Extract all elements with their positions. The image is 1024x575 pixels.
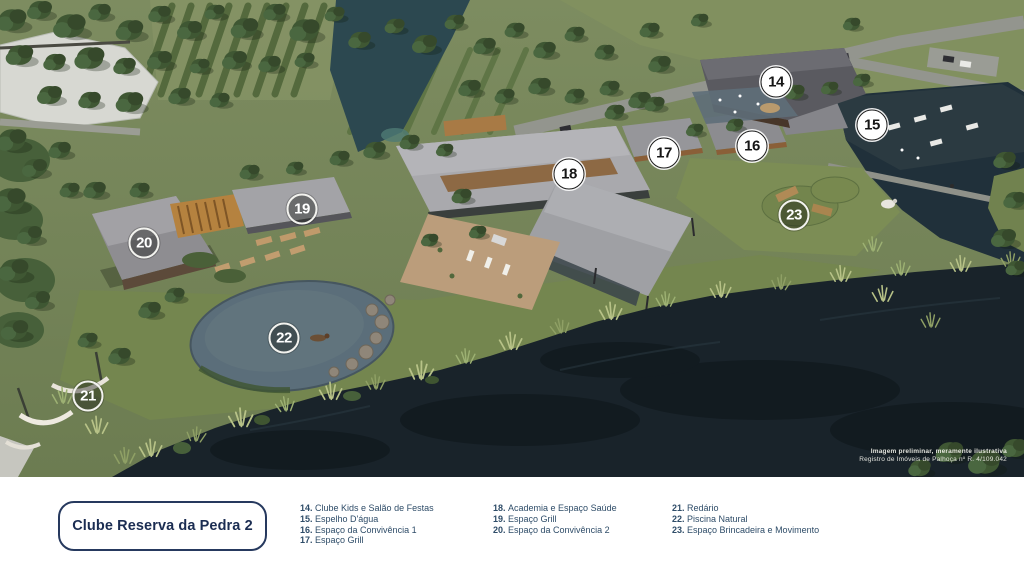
map-marker-19: 19 xyxy=(287,194,318,225)
legend-item-19: 19. Espaço Grill xyxy=(493,514,617,525)
legend-column-1: 14. Clube Kids e Salão de Festas15. Espe… xyxy=(300,503,434,546)
disclaimer-line-2: Registro de Imóveis de Palhoça nº R. 4/1… xyxy=(859,456,1007,464)
map-marker-16: 16 xyxy=(737,131,768,162)
masterplan-page: 14151617181920212223 Imagem preliminar, … xyxy=(0,0,1024,575)
legend-band: Clube Reserva da Pedra 2 14. Clube Kids … xyxy=(0,477,1024,575)
map-marker-20: 20 xyxy=(129,228,160,259)
disclaimer: Imagem preliminar, meramente ilustrativa… xyxy=(859,448,1007,463)
map-marker-18: 18 xyxy=(554,159,585,190)
legend-item-14: 14. Clube Kids e Salão de Festas xyxy=(300,503,434,514)
legend-item-15: 15. Espelho D'água xyxy=(300,514,434,525)
legend-item-20: 20. Espaço da Convivência 2 xyxy=(493,525,617,536)
legend-item-21: 21. Redário xyxy=(672,503,819,514)
legend-item-23: 23. Espaço Brincadeira e Movimento xyxy=(672,525,819,536)
legend-column-2: 18. Academia e Espaço Saúde19. Espaço Gr… xyxy=(493,503,617,535)
legend-item-22: 22. Piscina Natural xyxy=(672,514,819,525)
project-title: Clube Reserva da Pedra 2 xyxy=(72,518,253,534)
legend-item-16: 16. Espaço da Convivência 1 xyxy=(300,525,434,536)
map-marker-14: 14 xyxy=(761,67,792,98)
legend-item-18: 18. Academia e Espaço Saúde xyxy=(493,503,617,514)
map-marker-22: 22 xyxy=(269,323,300,354)
legend-item-17: 17. Espaço Grill xyxy=(300,535,434,546)
marker-layer: 14151617181920212223 xyxy=(0,0,1024,477)
project-title-box: Clube Reserva da Pedra 2 xyxy=(58,501,267,551)
map-marker-21: 21 xyxy=(73,381,104,412)
legend-column-3: 21. Redário22. Piscina Natural23. Espaço… xyxy=(672,503,819,535)
map-marker-15: 15 xyxy=(857,110,888,141)
map-marker-23: 23 xyxy=(779,200,810,231)
disclaimer-line-1: Imagem preliminar, meramente ilustrativa xyxy=(859,448,1007,456)
map-marker-17: 17 xyxy=(649,138,680,169)
